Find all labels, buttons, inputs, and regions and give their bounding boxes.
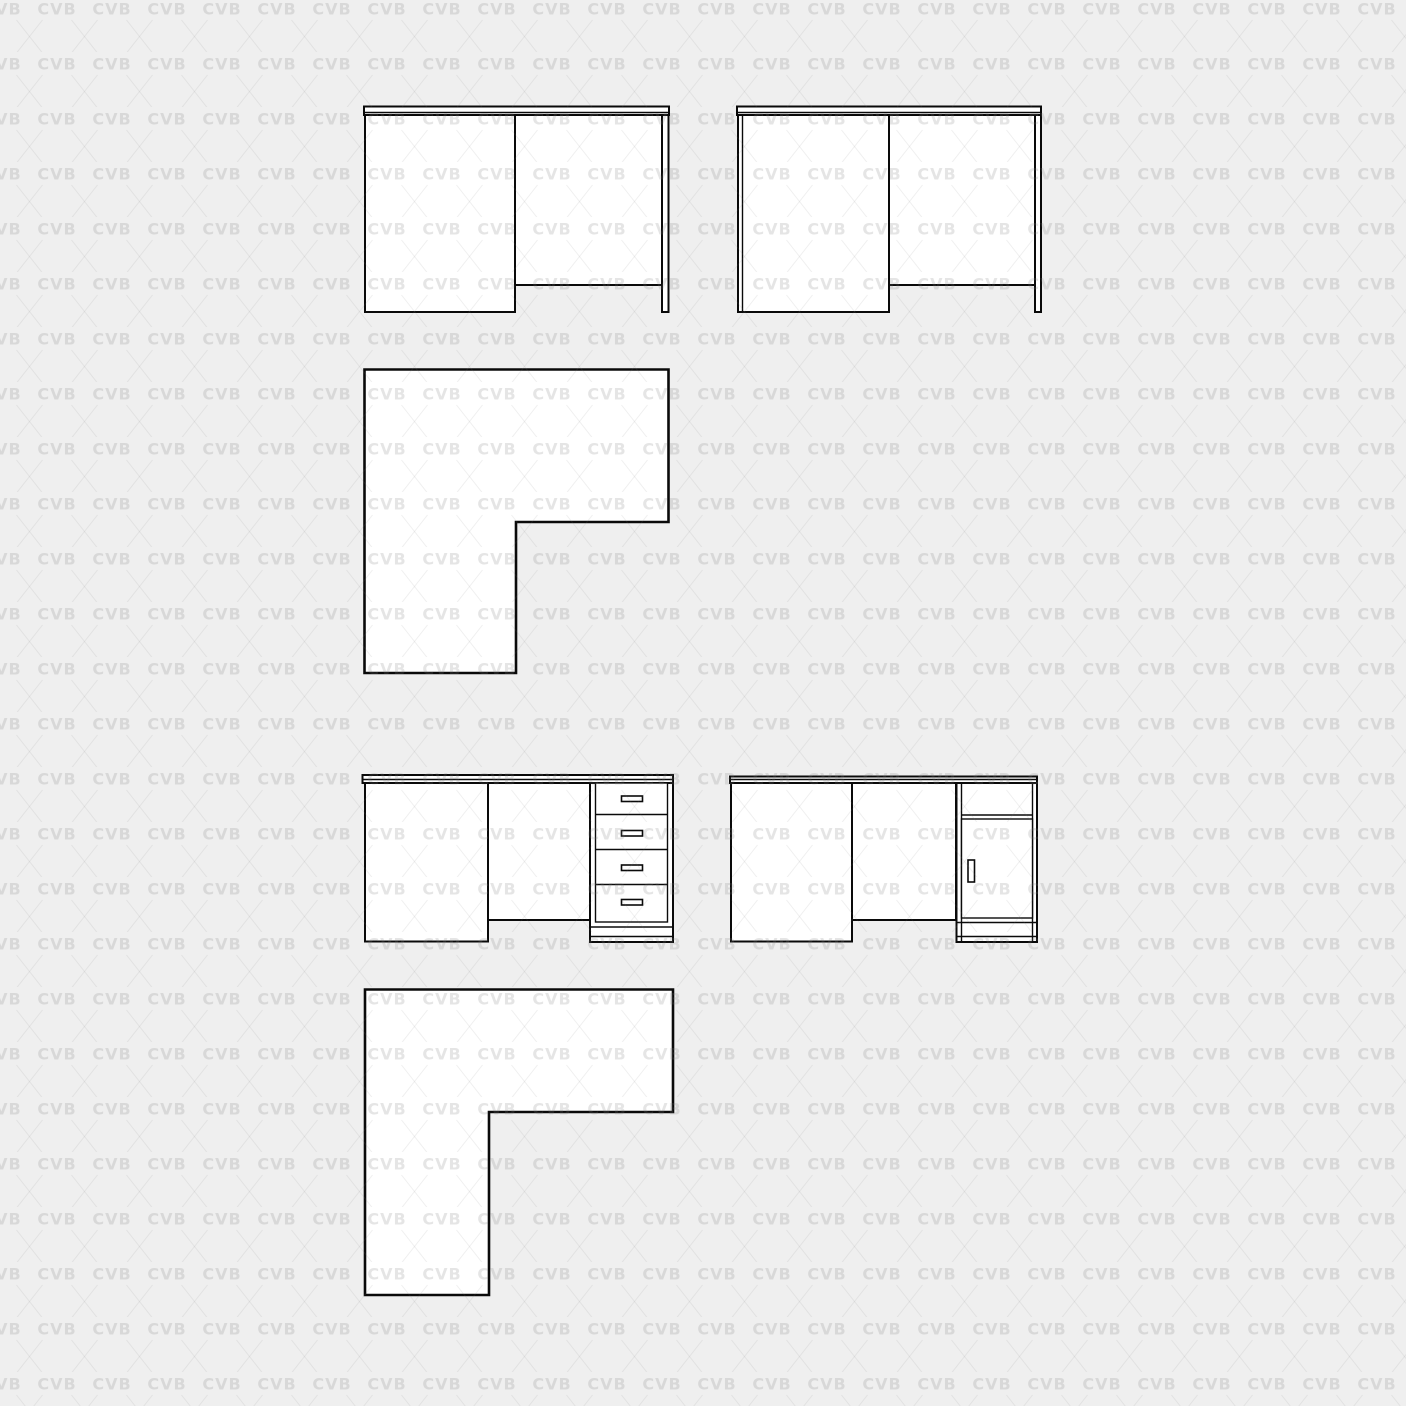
left-pedestal-panel <box>731 783 852 942</box>
l-desk-plan-upper <box>365 370 669 674</box>
desk-elevation-drawers <box>363 775 674 942</box>
l-desk-outline <box>365 370 669 674</box>
desk-elevation-b <box>737 107 1041 313</box>
desk-elevation-a <box>364 107 669 313</box>
desktop-surface <box>364 107 669 116</box>
left-pedestal-panel <box>365 115 515 312</box>
side-leg-panel <box>662 115 669 312</box>
drawer-handle <box>622 865 643 871</box>
drawer-handle <box>622 831 643 837</box>
drawer-handle <box>622 796 643 802</box>
kneehole-opening <box>515 115 662 285</box>
left-pedestal-panel <box>738 115 889 312</box>
l-desk-plan-lower <box>365 990 673 1296</box>
door-handle <box>968 860 975 882</box>
drawer-handle <box>622 900 643 906</box>
side-leg-panel <box>1035 115 1041 312</box>
cad-furniture-sheet: CVB <box>0 0 1406 1406</box>
kneehole-opening <box>852 783 956 920</box>
kneehole-opening <box>488 783 590 920</box>
furniture-drawing-layer <box>0 0 1406 1406</box>
desk-elevation-cabinet <box>730 777 1037 943</box>
desktop-surface <box>737 107 1041 116</box>
l-desk-outline <box>365 990 673 1296</box>
left-pedestal-panel <box>365 783 488 942</box>
kneehole-opening <box>889 115 1035 285</box>
